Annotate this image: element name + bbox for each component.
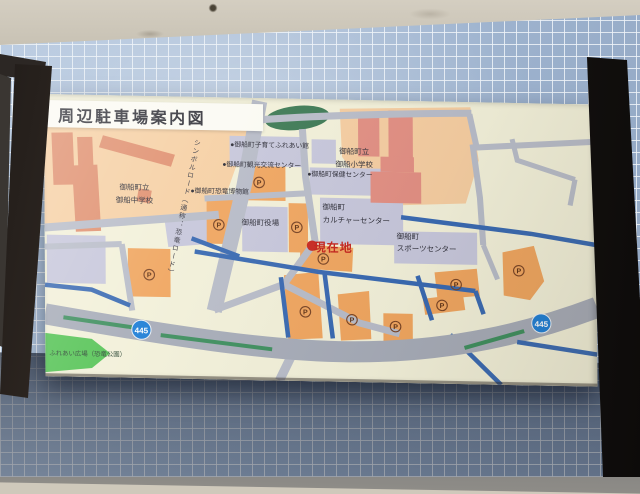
route-445-shield: 445 bbox=[132, 320, 151, 339]
route-number: 445 bbox=[535, 320, 549, 329]
svg-text:P: P bbox=[294, 225, 299, 232]
svg-text:P: P bbox=[216, 222, 221, 229]
photo-scene: 445 445 P P P P P P P P P P P bbox=[0, 0, 640, 477]
route-445-shield: 445 bbox=[532, 314, 551, 333]
svg-text:P: P bbox=[147, 272, 152, 279]
parking-map-sign: 445 445 P P P P P P P P P P P bbox=[44, 94, 597, 387]
sign-title: 周辺駐車場案内図 bbox=[58, 102, 206, 129]
svg-text:P: P bbox=[393, 324, 398, 331]
svg-text:P: P bbox=[257, 180, 262, 187]
sign-title-plate: 周辺駐車場案内図 bbox=[47, 100, 263, 131]
route-number: 445 bbox=[135, 326, 149, 335]
svg-text:P: P bbox=[321, 257, 326, 264]
svg-text:P: P bbox=[350, 317, 355, 324]
svg-text:P: P bbox=[516, 268, 521, 275]
map-graphic: 445 445 P P P P P P P P P P P bbox=[44, 94, 597, 387]
svg-text:P: P bbox=[303, 309, 308, 316]
svg-text:P: P bbox=[440, 303, 445, 310]
svg-text:P: P bbox=[454, 282, 459, 289]
